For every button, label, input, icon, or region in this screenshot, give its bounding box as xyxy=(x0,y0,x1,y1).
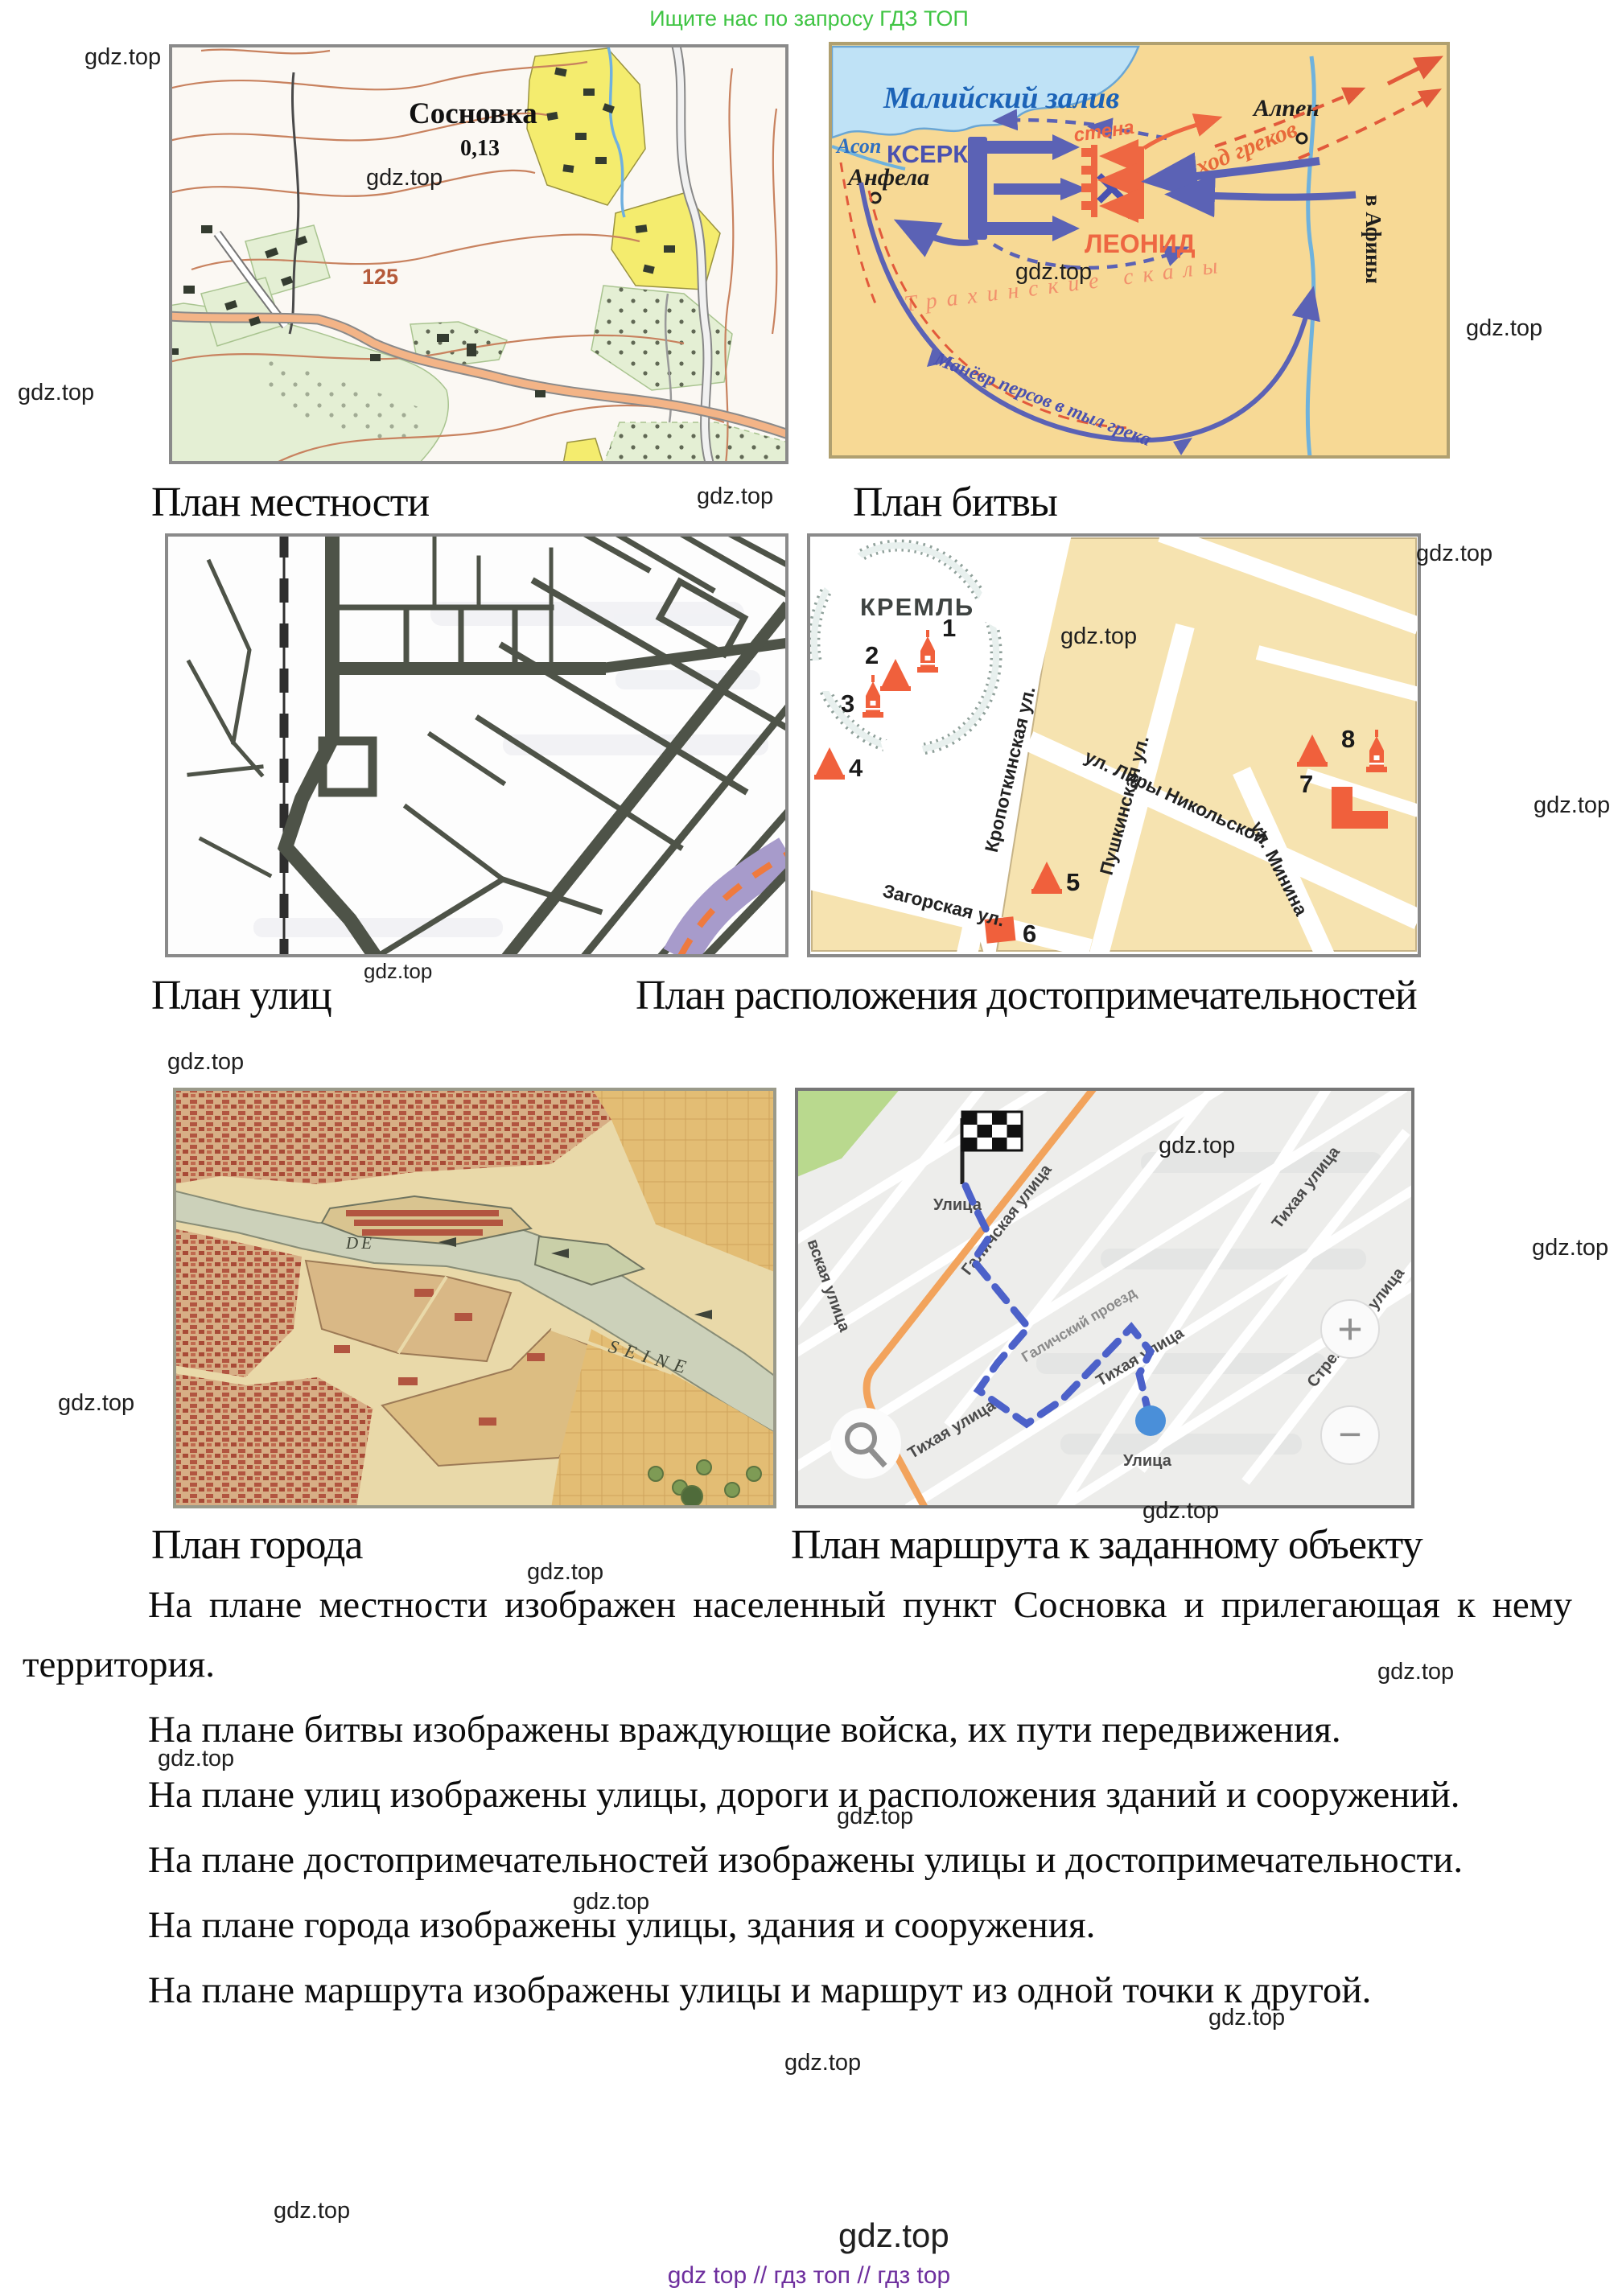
svg-text:4: 4 xyxy=(849,754,863,782)
city-map: DE SEINE xyxy=(173,1088,776,1508)
watermark-gdz: gdz.top xyxy=(1159,1133,1235,1159)
paragraph-landmarks: На плане достопримечательностей изображе… xyxy=(23,1830,1572,1890)
watermark-gdz: gdz.top xyxy=(1208,2005,1285,2031)
svg-text:8: 8 xyxy=(1341,725,1355,753)
paragraph-terrain: На плане местности изображен населенный … xyxy=(23,1575,1572,1694)
battle-persian-army xyxy=(968,134,1088,241)
watermark-gdz: gdz.top xyxy=(573,1889,649,1915)
paragraph-streets: На плане улиц изображены улицы, дороги и… xyxy=(23,1765,1572,1825)
caption-landmarks: План расположения достопримечательностей xyxy=(636,972,1417,1019)
kremlin-label: КРЕМЛЬ xyxy=(860,593,974,621)
footer-links[interactable]: gdz top // гдз топ // гдз top xyxy=(0,2262,1618,2290)
svg-text:−: − xyxy=(1338,1412,1361,1457)
watermark-gdz: gdz.top xyxy=(58,1390,134,1417)
watermark-gdz: gdz.top xyxy=(1142,1498,1219,1524)
watermark-gdz: gdz.top xyxy=(18,380,94,406)
streets-map xyxy=(165,533,788,957)
svg-text:6: 6 xyxy=(1023,920,1036,948)
svg-text:1: 1 xyxy=(942,614,956,642)
watermark-gdz: gdz.top xyxy=(837,1804,913,1830)
city-river-label-de: DE xyxy=(345,1233,375,1253)
search-icon[interactable] xyxy=(830,1408,901,1479)
watermark-gdz: gdz.top xyxy=(167,1049,244,1076)
battle-leonid-label: ЛЕОНИД xyxy=(1085,229,1196,258)
battle-map: Малийский залив Асоп КСЕРКС Анфела Алпен… xyxy=(829,42,1450,459)
caption-route: План маршрута к заданному объекту xyxy=(791,1521,1422,1569)
watermark-gdz: gdz.top xyxy=(366,165,443,191)
svg-text:7: 7 xyxy=(1299,770,1313,798)
watermark-gdz: gdz.top xyxy=(1377,1659,1454,1685)
paragraph-battle: На плане битвы изображены враждующие вой… xyxy=(23,1700,1572,1759)
svg-text:5: 5 xyxy=(1066,868,1080,896)
battle-athens-label: в Афины xyxy=(1361,195,1385,284)
watermark-gdz: gdz.top xyxy=(364,959,432,984)
watermark-gdz: gdz.top xyxy=(1532,1235,1608,1261)
caption-city: План города xyxy=(151,1521,362,1569)
battle-gulf-label: Малийский залив xyxy=(883,81,1119,115)
svg-text:+: + xyxy=(1337,1305,1363,1353)
caption-battle: План битвы xyxy=(853,479,1057,526)
watermark-gdz: gdz.top xyxy=(84,44,161,71)
terrain-map: Сосновка 0,13 125 xyxy=(169,44,788,464)
paragraph-city: На плане города изображены улицы, здания… xyxy=(23,1895,1572,1955)
watermark-gdz: gdz.top xyxy=(274,2198,350,2224)
caption-streets: План улиц xyxy=(151,972,331,1019)
watermark-gdz: gdz.top xyxy=(697,483,773,510)
caption-terrain: План местности xyxy=(151,479,429,526)
promo-banner: Ищите нас по запросу ГДЗ ТОП xyxy=(0,6,1618,31)
description-text: На плане местности изображен населенный … xyxy=(23,1575,1572,2026)
watermark-gdz: gdz.top xyxy=(1534,792,1610,819)
battle-anfela-label: Анфела xyxy=(846,164,929,191)
route-map: Галичская улица Галичский проезд Тихая у… xyxy=(795,1088,1414,1508)
paragraph-route: На плане маршрута изображены улицы и мар… xyxy=(23,1961,1572,2020)
watermark-gdz: gdz.top xyxy=(527,1559,603,1586)
watermark-gdz: gdz.top xyxy=(1015,259,1092,286)
terrain-elevation-label: 125 xyxy=(362,265,398,289)
landmarks-map: КРЕМЛЬ 1 2 3 4 5 6 7 8 Кропот xyxy=(807,533,1421,957)
terrain-village-label: Сосновка xyxy=(409,97,537,130)
zoom-out-button[interactable]: − xyxy=(1321,1406,1379,1464)
zoom-in-button[interactable]: + xyxy=(1321,1300,1379,1358)
watermark-gdz: gdz.top xyxy=(1466,315,1542,342)
svg-text:3: 3 xyxy=(841,689,854,718)
terrain-density-label: 0,13 xyxy=(460,136,500,161)
svg-text:2: 2 xyxy=(865,641,879,669)
watermark-gdz: gdz.top xyxy=(784,2050,861,2076)
route-end-street-label: Улица xyxy=(1123,1452,1172,1470)
battle-asop-label: Асоп xyxy=(835,134,881,158)
watermark-gdz: gdz.top xyxy=(1416,541,1492,567)
watermark-gdz: gdz.top xyxy=(1060,623,1137,650)
watermark-gdz: gdz.top xyxy=(838,2216,949,2255)
route-destination-dot xyxy=(1135,1405,1166,1436)
watermark-gdz: gdz.top xyxy=(158,1746,234,1772)
